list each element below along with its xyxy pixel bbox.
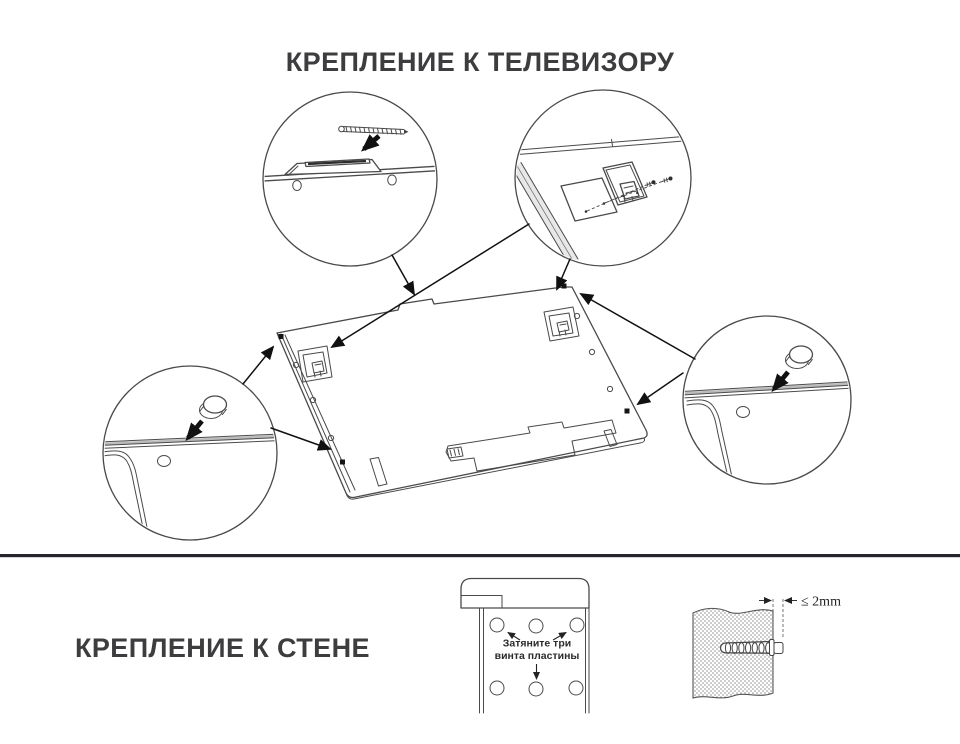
section-divider xyxy=(0,554,960,557)
plug-cap xyxy=(200,396,227,419)
callout-plug-left xyxy=(100,396,280,542)
arrow-c1-to-panel xyxy=(392,255,414,294)
tv-back-panel xyxy=(277,284,647,500)
plate-note-line2: винта пластины xyxy=(495,650,580,662)
wall-plate-hook-bar xyxy=(461,579,589,609)
callout-circle xyxy=(103,366,277,540)
hook-eyelet xyxy=(293,181,302,191)
insert-arrow xyxy=(364,136,379,149)
callout-plug-right xyxy=(682,346,854,486)
tv-edge-line xyxy=(518,136,690,155)
callout-circle xyxy=(515,90,691,266)
plug-hole xyxy=(737,407,750,418)
plug-cap xyxy=(786,346,813,369)
insert-arrow xyxy=(188,421,202,438)
wall-anchor-detail: ≤ 2mm xyxy=(693,595,841,699)
plug-hole xyxy=(158,456,171,467)
screw xyxy=(339,126,409,134)
callout-bracket-plates xyxy=(512,136,690,265)
hook-eyelet xyxy=(388,175,397,185)
callout-circle xyxy=(683,316,851,484)
gap-dimension-label: ≤ 2mm xyxy=(801,595,841,610)
wall-plate: Затяните три винта пластины xyxy=(461,579,589,714)
callout-screw-slot xyxy=(263,126,441,190)
mounting-diagram: Затяните три винта пластины xyxy=(0,0,960,744)
plate-note-line1: Затяните три xyxy=(503,638,571,650)
arrow-c4-to-side-marker xyxy=(638,373,683,404)
adhesive-plate-left xyxy=(561,178,617,221)
instruction-page: КРЕПЛЕНИЕ К ТЕЛЕВИЗОРУ КРЕПЛЕНИЕ К СТЕНЕ xyxy=(0,0,960,744)
arrow-c3-to-top-corner xyxy=(243,347,273,384)
bezel-corner xyxy=(103,451,150,542)
screw xyxy=(645,177,673,187)
